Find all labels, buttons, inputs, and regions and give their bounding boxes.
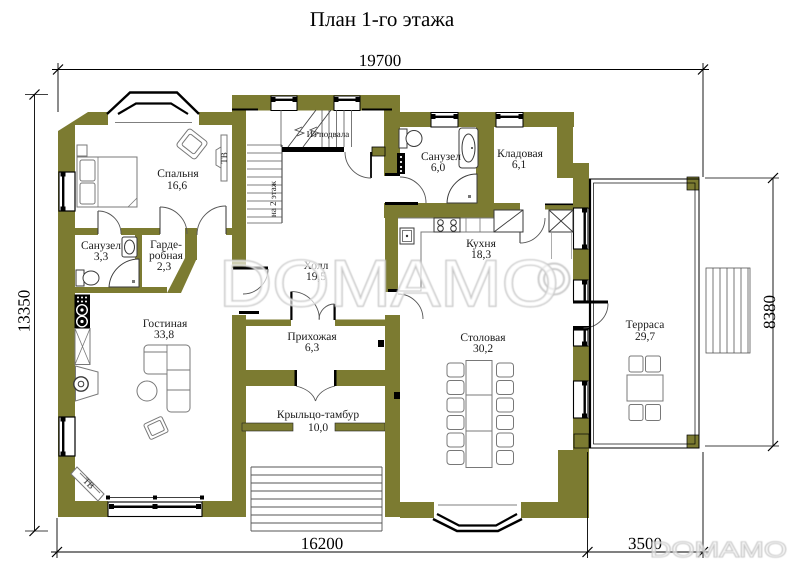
- svg-text:19700: 19700: [359, 51, 402, 70]
- svg-text:29,7: 29,7: [635, 331, 655, 343]
- svg-text:30,2: 30,2: [473, 343, 493, 355]
- svg-text:3,3: 3,3: [94, 251, 109, 263]
- svg-text:Спальня: Спальня: [157, 168, 199, 180]
- svg-text:6,3: 6,3: [305, 342, 320, 354]
- svg-text:13350: 13350: [15, 290, 34, 333]
- svg-text:ТВ: ТВ: [219, 152, 229, 164]
- svg-text:DOMAMO: DOMAMO: [650, 537, 787, 562]
- svg-text:DOMAMO: DOMAMO: [219, 246, 559, 320]
- svg-text:Терраса: Терраса: [626, 319, 665, 331]
- svg-text:План 1-го этажа: План 1-го этажа: [310, 7, 455, 31]
- svg-text:Из подвала: Из подвала: [307, 129, 350, 139]
- svg-text:16,6: 16,6: [167, 180, 187, 192]
- svg-text:6,0: 6,0: [431, 162, 446, 174]
- svg-text:на 2 этаж: на 2 этаж: [268, 180, 278, 217]
- svg-text:Крыльцо-тамбур: Крыльцо-тамбур: [277, 409, 360, 421]
- svg-text:33,8: 33,8: [154, 329, 174, 341]
- svg-text:16200: 16200: [301, 534, 344, 553]
- svg-text:8380: 8380: [760, 295, 779, 329]
- svg-text:10,0: 10,0: [308, 422, 328, 434]
- svg-text:2,3: 2,3: [157, 261, 172, 273]
- svg-text:6,1: 6,1: [512, 159, 527, 171]
